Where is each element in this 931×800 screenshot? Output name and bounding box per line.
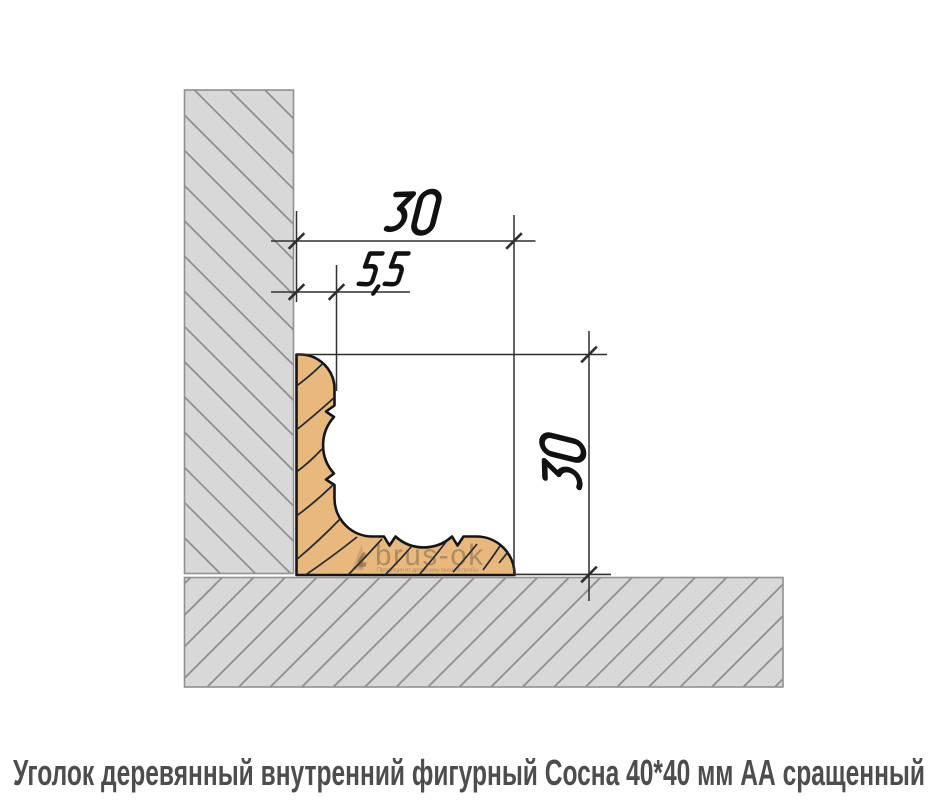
svg-text:Продукция из древесины высшей: Продукция из древесины высшей пробы [377, 567, 478, 574]
svg-text:Уголок деревянный внутренний ф: Уголок деревянный внутренний фигурный Со… [13, 752, 925, 793]
